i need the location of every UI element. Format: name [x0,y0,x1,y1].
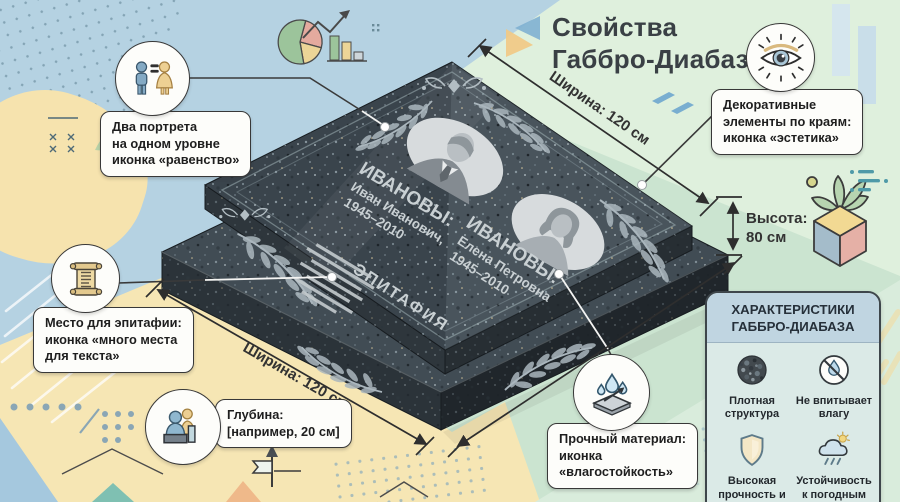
callout-circle-depth [145,389,221,465]
callout-material: Прочный материал: иконка «влагостойкость… [547,423,698,489]
callout-circle-material [573,354,650,431]
dot-rows-bottom-left [11,404,135,444]
shield-durability-icon [731,429,773,471]
feature-label: Не впитывает влагу [794,395,874,421]
callout-circle-portraits [115,41,190,116]
water-drops-icon [585,366,639,420]
callout-line: иконка «эстетика» [723,130,851,147]
feature-label: Устойчивость к погодным условиям [794,475,874,502]
callout-line: Место для эпитафии: [45,315,182,332]
panel-title: ХАРАКТЕРИСТИКИ ГАББРО-ДИАБАЗА [707,293,879,343]
callout-portraits: Два портрета на одном уровне иконка «рав… [100,111,251,177]
eye-icon [756,33,806,83]
infographic-gabbro-diabase: ИВАНОВЫ: Иван Иванович, 1945–2010 ИВАНОВ… [0,0,900,502]
man-woman-equality-icon [128,54,178,104]
callout-line: на одном уровне [112,136,239,153]
scroll-icon [62,255,110,303]
callout-line: «влагостойкость» [559,464,686,481]
width-top-label: Ширина: 120 см [546,68,653,149]
callout-decor: Декоративные элементы по краям: иконка «… [711,89,863,155]
title-line-2: Габбро-Диабаз [552,44,749,76]
bar-chart-decoration [327,24,379,61]
feature-label: Высокая прочность и долговечность [712,475,792,502]
callout-line: Глубина: [227,407,340,424]
small-marks-decoration [48,118,78,152]
callout-line: иконка «много места [45,332,182,349]
panel-title-line-2: ГАББРО-ДИАБАЗА [713,319,873,336]
feature-durability: Высокая прочность и долговечность [711,429,793,502]
no-water-absorption-icon [813,349,855,391]
flag-decoration [253,445,301,487]
people-depth-icon [157,401,209,453]
feature-no-absorption: Не впитывает влагу [793,349,875,421]
panel-title-line-1: ХАРАКТЕРИСТИКИ [713,302,873,319]
panel-features: Плотная структура Не впитывает влагу Выс… [707,343,879,502]
callout-circle-epitaph [51,244,120,313]
page-title: Свойства Габбро-Диабаз [552,12,749,75]
callout-line: [например, 20 см] [227,424,340,441]
callout-line: иконка [559,448,686,465]
callout-depth: Глубина: [например, 20 см] [215,399,352,448]
feature-label: Плотная структура [712,395,792,421]
callout-circle-decor [746,23,815,92]
callout-epitaph: Место для эпитафии: иконка «много места … [33,307,194,373]
callout-line: иконка «равенство» [112,152,239,169]
callout-line: элементы по краям: [723,114,851,131]
dense-structure-icon [731,349,773,391]
callout-line: Декоративные [723,97,851,114]
feature-dense-structure: Плотная структура [711,349,793,421]
callout-line: Два портрета [112,119,239,136]
height-label-1: Высота: [746,210,807,227]
weather-resistance-icon [813,429,855,471]
characteristics-panel: ХАРАКТЕРИСТИКИ ГАББРО-ДИАБАЗА Плотная ст… [705,291,881,502]
callout-line: Прочный материал: [559,431,686,448]
feature-weather-resistance: Устойчивость к погодным условиям [793,429,875,502]
height-label-2: 80 см [746,229,786,246]
title-line-1: Свойства [552,12,749,44]
callout-line: для текста» [45,348,182,365]
